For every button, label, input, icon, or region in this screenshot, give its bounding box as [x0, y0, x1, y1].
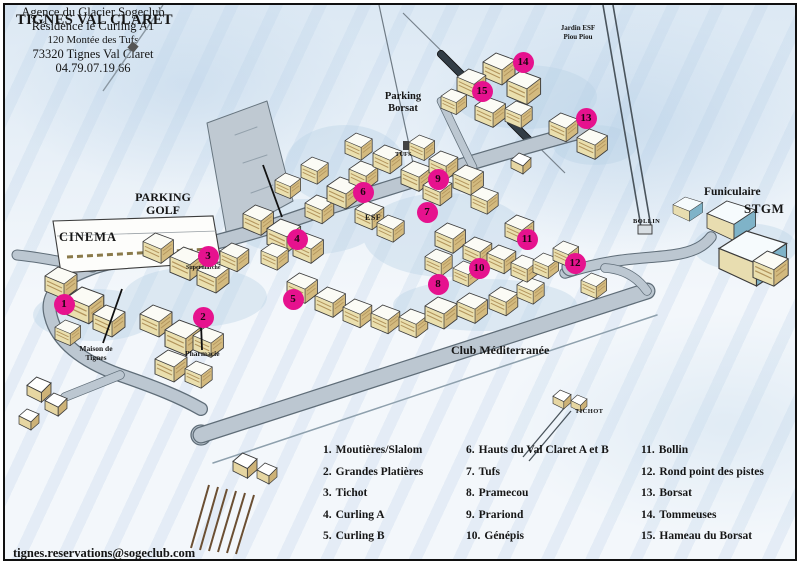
map-frame: TIGNES VAL CLARET Agence du Glacier Soge… — [3, 3, 797, 561]
map-marker-4: 4 — [287, 229, 308, 250]
map-marker-12: 12 — [565, 253, 586, 274]
legend-column-2: 6.Hauts du Val Claret A et B 7.Tufs 8.Pr… — [466, 444, 609, 552]
legend-item: 2.Grandes Platières — [323, 466, 423, 478]
legend-item: 13.Borsat — [641, 487, 764, 499]
resort-map-page: TIGNES VAL CLARET Agence du Glacier Soge… — [0, 0, 800, 564]
map-marker-15: 15 — [472, 81, 493, 102]
map-marker-8: 8 — [428, 274, 449, 295]
map-marker-6: 6 — [353, 182, 374, 203]
legend-item: 10.Génépis — [466, 530, 609, 542]
legend-item: 9.Prariond — [466, 509, 609, 521]
map-marker-1: 1 — [54, 294, 75, 315]
legend-item: 3.Tichot — [323, 487, 423, 499]
legend-item: 14.Tommeuses — [641, 509, 764, 521]
legend-item: 6.Hauts du Val Claret A et B — [466, 444, 609, 456]
map-marker-10: 10 — [469, 258, 490, 279]
legend-item: 7.Tufs — [466, 466, 609, 478]
map-marker-5: 5 — [283, 289, 304, 310]
map-marker-9: 9 — [428, 169, 449, 190]
map-marker-3: 3 — [198, 246, 219, 267]
legend-column-1: 1.Moutières/Slalom 2.Grandes Platières 3… — [323, 444, 423, 552]
legend-item: 1.Moutières/Slalom — [323, 444, 423, 456]
legend-item: 8.Pramecou — [466, 487, 609, 499]
map-marker-13: 13 — [576, 108, 597, 129]
map-marker-7: 7 — [417, 202, 438, 223]
map-marker-14: 14 — [513, 52, 534, 73]
legend-item: 11.Bollin — [641, 444, 764, 456]
legend-item: 5.Curling B — [323, 530, 423, 542]
legend-column-3: 11.Bollin 12.Rond point des pistes 13.Bo… — [641, 444, 764, 552]
legend-item: 4.Curling A — [323, 509, 423, 521]
legend-item: 12.Rond point des pistes — [641, 466, 764, 478]
legend-item: 15.Hameau du Borsat — [641, 530, 764, 542]
map-marker-11: 11 — [517, 229, 538, 250]
legend: 1.Moutières/Slalom 2.Grandes Platières 3… — [5, 5, 797, 561]
map-marker-2: 2 — [193, 307, 214, 328]
